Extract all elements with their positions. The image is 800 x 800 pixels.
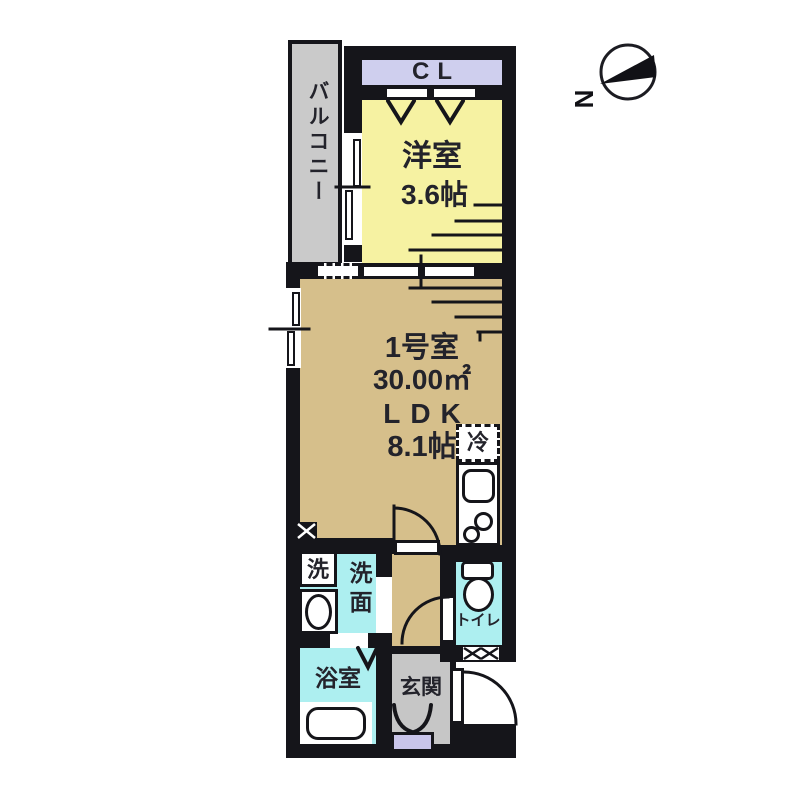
ldk-unit-label: 1号室 bbox=[348, 333, 496, 364]
washroom-doorway bbox=[376, 577, 392, 633]
western-room-size: 3.6帖 bbox=[362, 180, 507, 210]
pipe-space-icon bbox=[296, 522, 317, 540]
floor-plan: N バルコニー CL 洋室 3.6帖 1号室 30.00㎡ LDK 8.1帖 冷… bbox=[0, 0, 800, 800]
ldk-area-label: 30.00㎡ bbox=[348, 365, 496, 395]
toilet-label: トイレ bbox=[453, 613, 503, 629]
ldk-doorway bbox=[394, 540, 440, 555]
balcony-label: バルコニー bbox=[302, 80, 332, 205]
window-pane bbox=[345, 190, 353, 240]
stove-burner bbox=[463, 526, 480, 543]
washroom-label: 洗面 bbox=[342, 561, 376, 619]
kitchen-sink bbox=[462, 469, 495, 503]
partition-open-dashed bbox=[318, 263, 358, 279]
bathroom-label: 浴室 bbox=[300, 666, 376, 691]
entry-opening bbox=[456, 662, 516, 724]
vanity-sink bbox=[305, 594, 332, 630]
bathtub bbox=[306, 707, 366, 740]
western-room-label: 洋室 bbox=[362, 141, 502, 173]
north-label: N bbox=[569, 90, 599, 109]
bathroom-doorway bbox=[330, 633, 368, 648]
toilet-bowl bbox=[463, 577, 494, 612]
refrigerator-label: 冷 bbox=[456, 431, 500, 455]
closet-door-panel bbox=[385, 87, 429, 99]
entrance-step bbox=[392, 646, 456, 654]
sliding-door-panel bbox=[362, 265, 420, 278]
front-door-leaf bbox=[450, 668, 464, 724]
vent-icon bbox=[463, 647, 499, 660]
window-pane bbox=[292, 292, 300, 326]
north-compass-icon: N bbox=[569, 45, 656, 108]
shoe-cabinet bbox=[391, 732, 434, 752]
entrance-label: 玄関 bbox=[392, 677, 450, 700]
window-pane bbox=[287, 331, 295, 366]
sliding-door-panel bbox=[423, 265, 476, 278]
closet-door-panel bbox=[432, 87, 477, 99]
closet-label: CL bbox=[362, 59, 502, 85]
window-pane bbox=[353, 139, 361, 187]
washer-label: 洗 bbox=[299, 558, 337, 582]
ldk-layout-label: LDK bbox=[348, 399, 496, 429]
